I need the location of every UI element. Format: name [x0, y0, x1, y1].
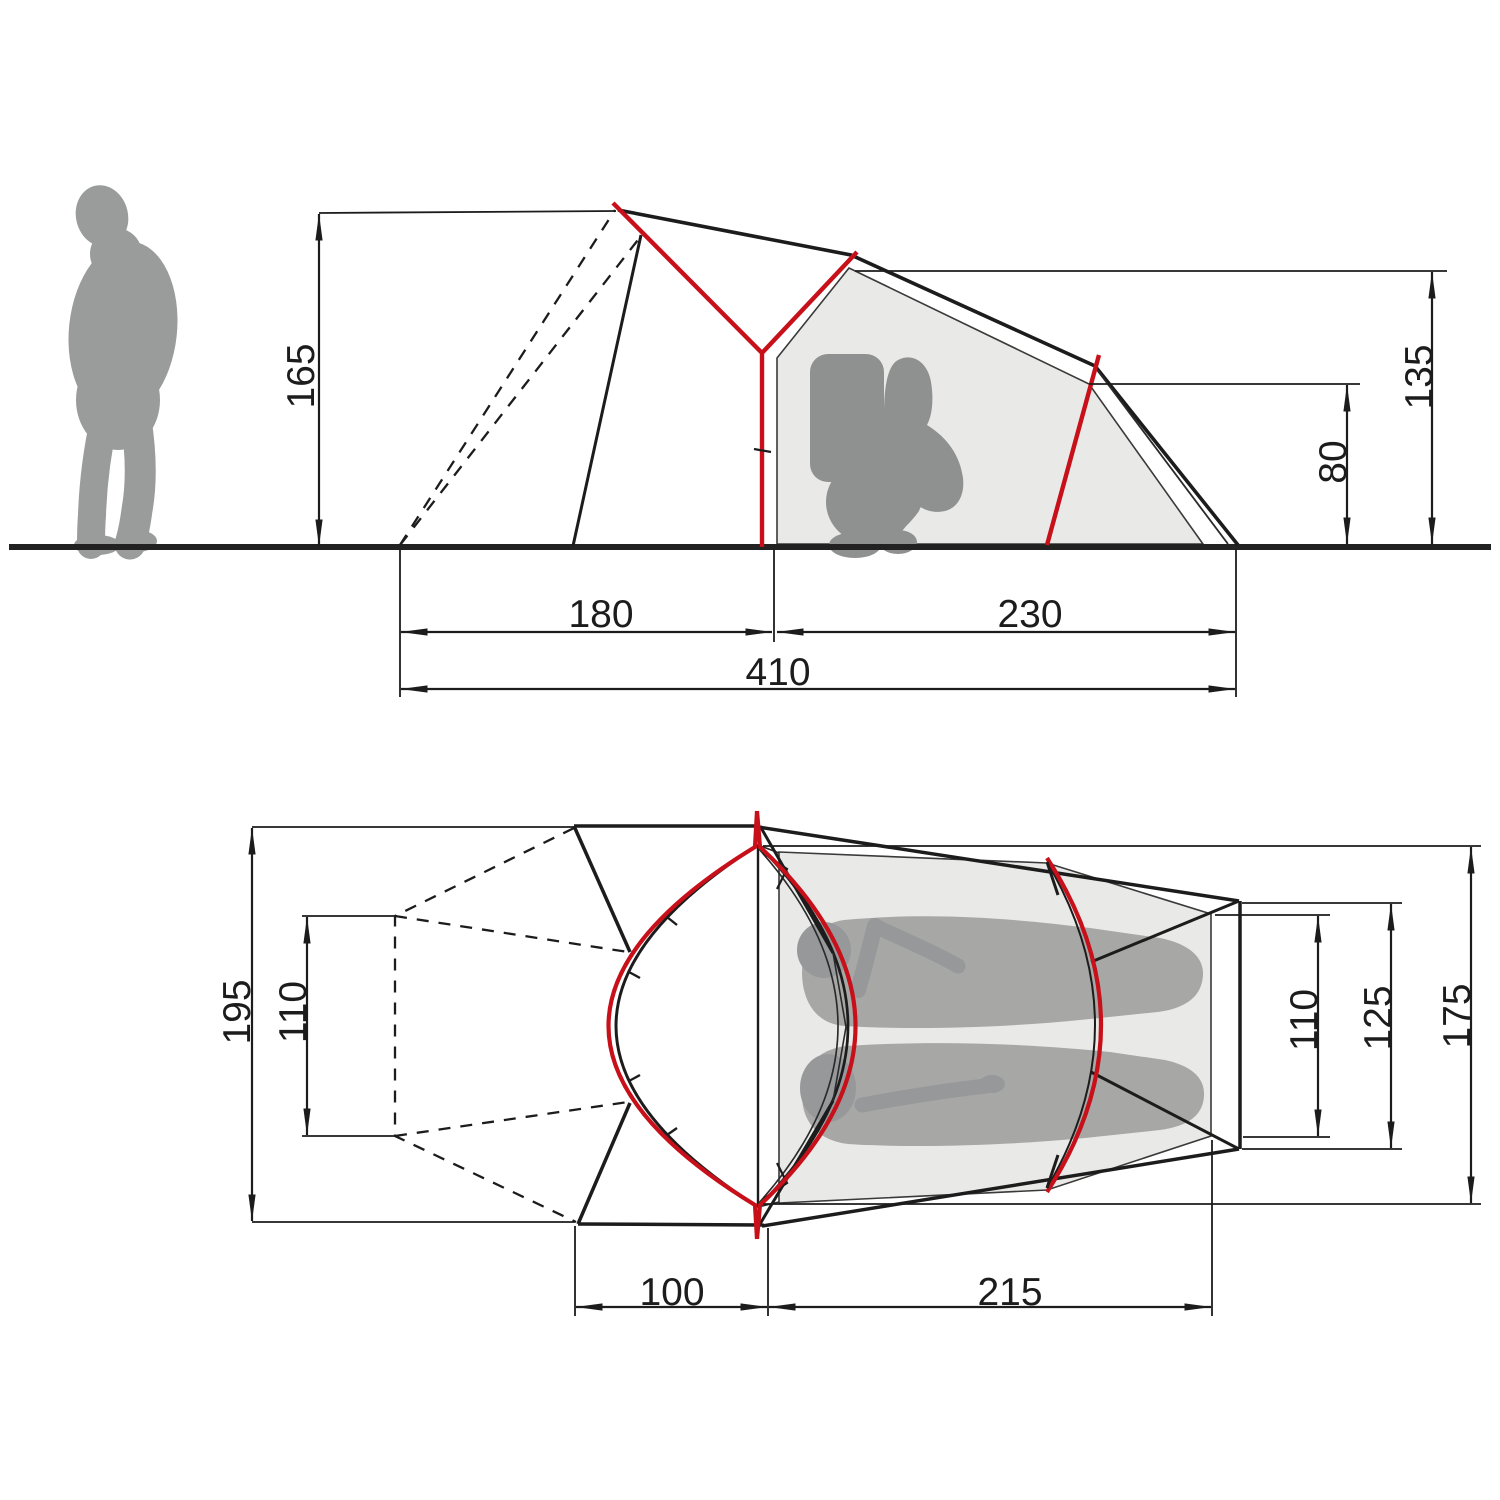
svg-text:110: 110 — [1283, 989, 1326, 1051]
svg-text:125: 125 — [1357, 985, 1400, 1050]
svg-text:165: 165 — [280, 343, 323, 408]
svg-text:80: 80 — [1312, 440, 1355, 483]
svg-text:195: 195 — [216, 979, 259, 1044]
svg-text:135: 135 — [1398, 344, 1441, 409]
svg-text:100: 100 — [639, 1271, 704, 1314]
svg-text:230: 230 — [997, 593, 1062, 636]
svg-text:215: 215 — [977, 1271, 1042, 1314]
svg-text:175: 175 — [1436, 983, 1479, 1048]
svg-text:110: 110 — [272, 981, 315, 1043]
svg-text:180: 180 — [568, 593, 633, 636]
svg-text:410: 410 — [745, 651, 810, 694]
